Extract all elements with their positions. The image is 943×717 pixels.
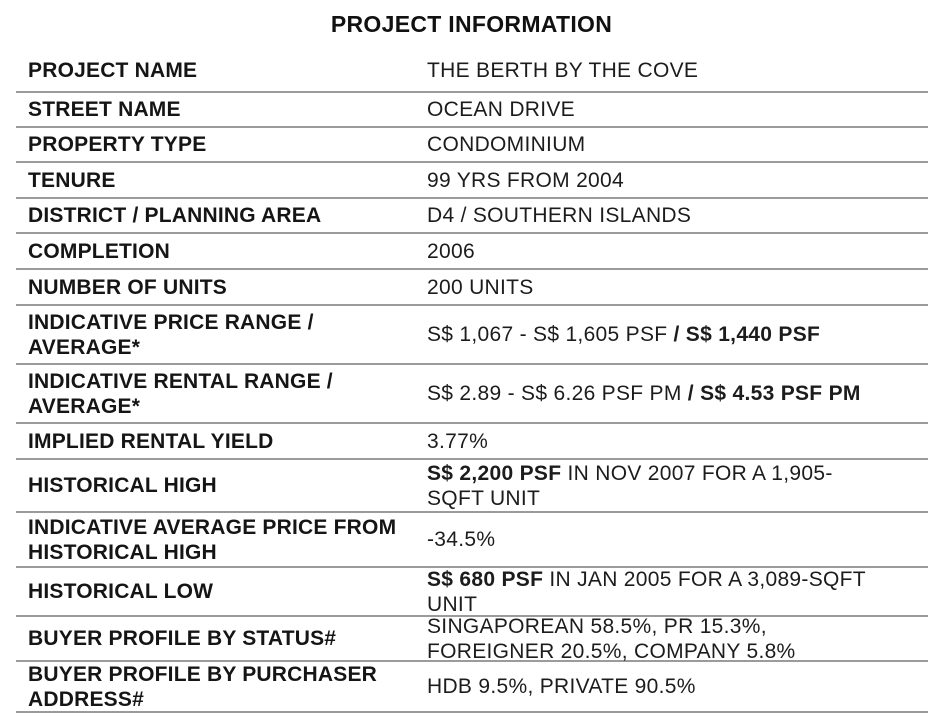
page-title: PROJECT INFORMATION xyxy=(0,0,943,49)
table-row-street-name: STREET NAME OCEAN DRIVE xyxy=(16,93,928,128)
value-text: -34.5% xyxy=(427,528,495,551)
table-row-indicative-rental-range: INDICATIVE RENTAL RANGE / AVERAGE* S$ 2.… xyxy=(16,365,928,424)
value-text: HDB 9.5%, PRIVATE 90.5% xyxy=(427,675,696,698)
row-label: BUYER PROFILE BY STATUS# xyxy=(16,626,415,651)
table-row-tenure: TENURE 99 YRS FROM 2004 xyxy=(16,163,928,199)
row-value: OCEAN DRIVE xyxy=(415,97,928,122)
row-label: DISTRICT / PLANNING AREA xyxy=(16,203,415,228)
row-label: HISTORICAL HIGH xyxy=(16,473,415,498)
value-text-bold: / S$ 4.53 PSF PM xyxy=(688,382,861,405)
row-label: NUMBER OF UNITS xyxy=(16,275,415,300)
row-value: S$ 1,067 - S$ 1,605 PSF / S$ 1,440 PSF xyxy=(415,322,928,347)
value-text: OCEAN DRIVE xyxy=(427,98,575,121)
table-row-historical-low: HISTORICAL LOW S$ 680 PSF IN JAN 2005 FO… xyxy=(16,568,928,617)
table-row-district-planning-area: DISTRICT / PLANNING AREA D4 / SOUTHERN I… xyxy=(16,199,928,234)
table-row-buyer-profile-by-purchaser-address: BUYER PROFILE BY PURCHASER ADDRESS# HDB … xyxy=(16,662,928,713)
table-row-historical-high: HISTORICAL HIGH S$ 2,200 PSF IN NOV 2007… xyxy=(16,460,928,513)
table-row-project-name: PROJECT NAME THE BERTH BY THE COVE xyxy=(16,49,928,93)
row-value: SINGAPOREAN 58.5%, PR 15.3%,FOREIGNER 20… xyxy=(415,614,928,664)
row-label: BUYER PROFILE BY PURCHASER ADDRESS# xyxy=(16,662,415,712)
value-text-bold: / S$ 1,440 PSF xyxy=(674,323,821,346)
row-value: S$ 2,200 PSF IN NOV 2007 FOR A 1,905-SQF… xyxy=(415,461,928,511)
row-label: PROPERTY TYPE xyxy=(16,132,415,157)
value-text: THE BERTH BY THE COVE xyxy=(427,59,698,82)
value-text: S$ 2.89 - S$ 6.26 PSF PM xyxy=(427,382,688,405)
value-text: 2006 xyxy=(427,240,475,263)
row-label: COMPLETION xyxy=(16,239,415,264)
value-text-line2: SQFT UNIT xyxy=(427,487,540,510)
value-text: IN NOV 2007 FOR A 1,905- xyxy=(561,462,832,485)
value-text-bold: S$ 680 PSF xyxy=(427,568,543,591)
value-text: IN JAN 2005 FOR A 3,089-SQFT xyxy=(543,568,866,591)
row-label: INDICATIVE PRICE RANGE / AVERAGE* xyxy=(16,310,415,360)
table-row-property-type: PROPERTY TYPE CONDOMINIUM xyxy=(16,128,928,163)
row-value: -34.5% xyxy=(415,527,928,552)
row-label: INDICATIVE AVERAGE PRICE FROM HISTORICAL… xyxy=(16,515,415,565)
value-text: 99 YRS FROM 2004 xyxy=(427,169,624,192)
row-label: HISTORICAL LOW xyxy=(16,579,415,604)
row-value: D4 / SOUTHERN ISLANDS xyxy=(415,203,928,228)
row-label: STREET NAME xyxy=(16,97,415,122)
row-label: IMPLIED RENTAL YIELD xyxy=(16,429,415,454)
value-text: D4 / SOUTHERN ISLANDS xyxy=(427,204,691,227)
value-text: 3.77% xyxy=(427,430,488,453)
value-text: 200 UNITS xyxy=(427,276,534,299)
table-row-completion: COMPLETION 2006 xyxy=(16,234,928,270)
value-text: SINGAPOREAN 58.5%, PR 15.3%, xyxy=(427,615,767,638)
row-label: PROJECT NAME xyxy=(16,58,415,83)
row-value: S$ 680 PSF IN JAN 2005 FOR A 3,089-SQFTU… xyxy=(415,567,928,617)
project-information-table: PROJECT NAME THE BERTH BY THE COVE STREE… xyxy=(16,49,928,713)
table-row-number-of-units: NUMBER OF UNITS 200 UNITS xyxy=(16,270,928,306)
value-text: CONDOMINIUM xyxy=(427,133,585,156)
table-row-implied-rental-yield: IMPLIED RENTAL YIELD 3.77% xyxy=(16,424,928,460)
row-value: THE BERTH BY THE COVE xyxy=(415,58,928,83)
row-value: 200 UNITS xyxy=(415,275,928,300)
value-text: S$ 1,067 - S$ 1,605 PSF xyxy=(427,323,674,346)
row-value: CONDOMINIUM xyxy=(415,132,928,157)
row-label: TENURE xyxy=(16,168,415,193)
value-text-line2: FOREIGNER 20.5%, COMPANY 5.8% xyxy=(427,640,796,663)
row-value: 99 YRS FROM 2004 xyxy=(415,168,928,193)
project-information-sheet: PROJECT INFORMATION PROJECT NAME THE BER… xyxy=(0,0,943,717)
value-text-bold: S$ 2,200 PSF xyxy=(427,462,561,485)
table-row-indicative-average-price-from-historical-high: INDICATIVE AVERAGE PRICE FROM HISTORICAL… xyxy=(16,513,928,568)
row-value: 2006 xyxy=(415,239,928,264)
row-label: INDICATIVE RENTAL RANGE / AVERAGE* xyxy=(16,369,415,419)
row-value: HDB 9.5%, PRIVATE 90.5% xyxy=(415,674,928,699)
table-row-buyer-profile-by-status: BUYER PROFILE BY STATUS# SINGAPOREAN 58.… xyxy=(16,617,928,662)
table-row-indicative-price-range: INDICATIVE PRICE RANGE / AVERAGE* S$ 1,0… xyxy=(16,306,928,365)
row-value: S$ 2.89 - S$ 6.26 PSF PM / S$ 4.53 PSF P… xyxy=(415,381,928,406)
value-text-line2: UNIT xyxy=(427,593,477,616)
row-value: 3.77% xyxy=(415,429,928,454)
